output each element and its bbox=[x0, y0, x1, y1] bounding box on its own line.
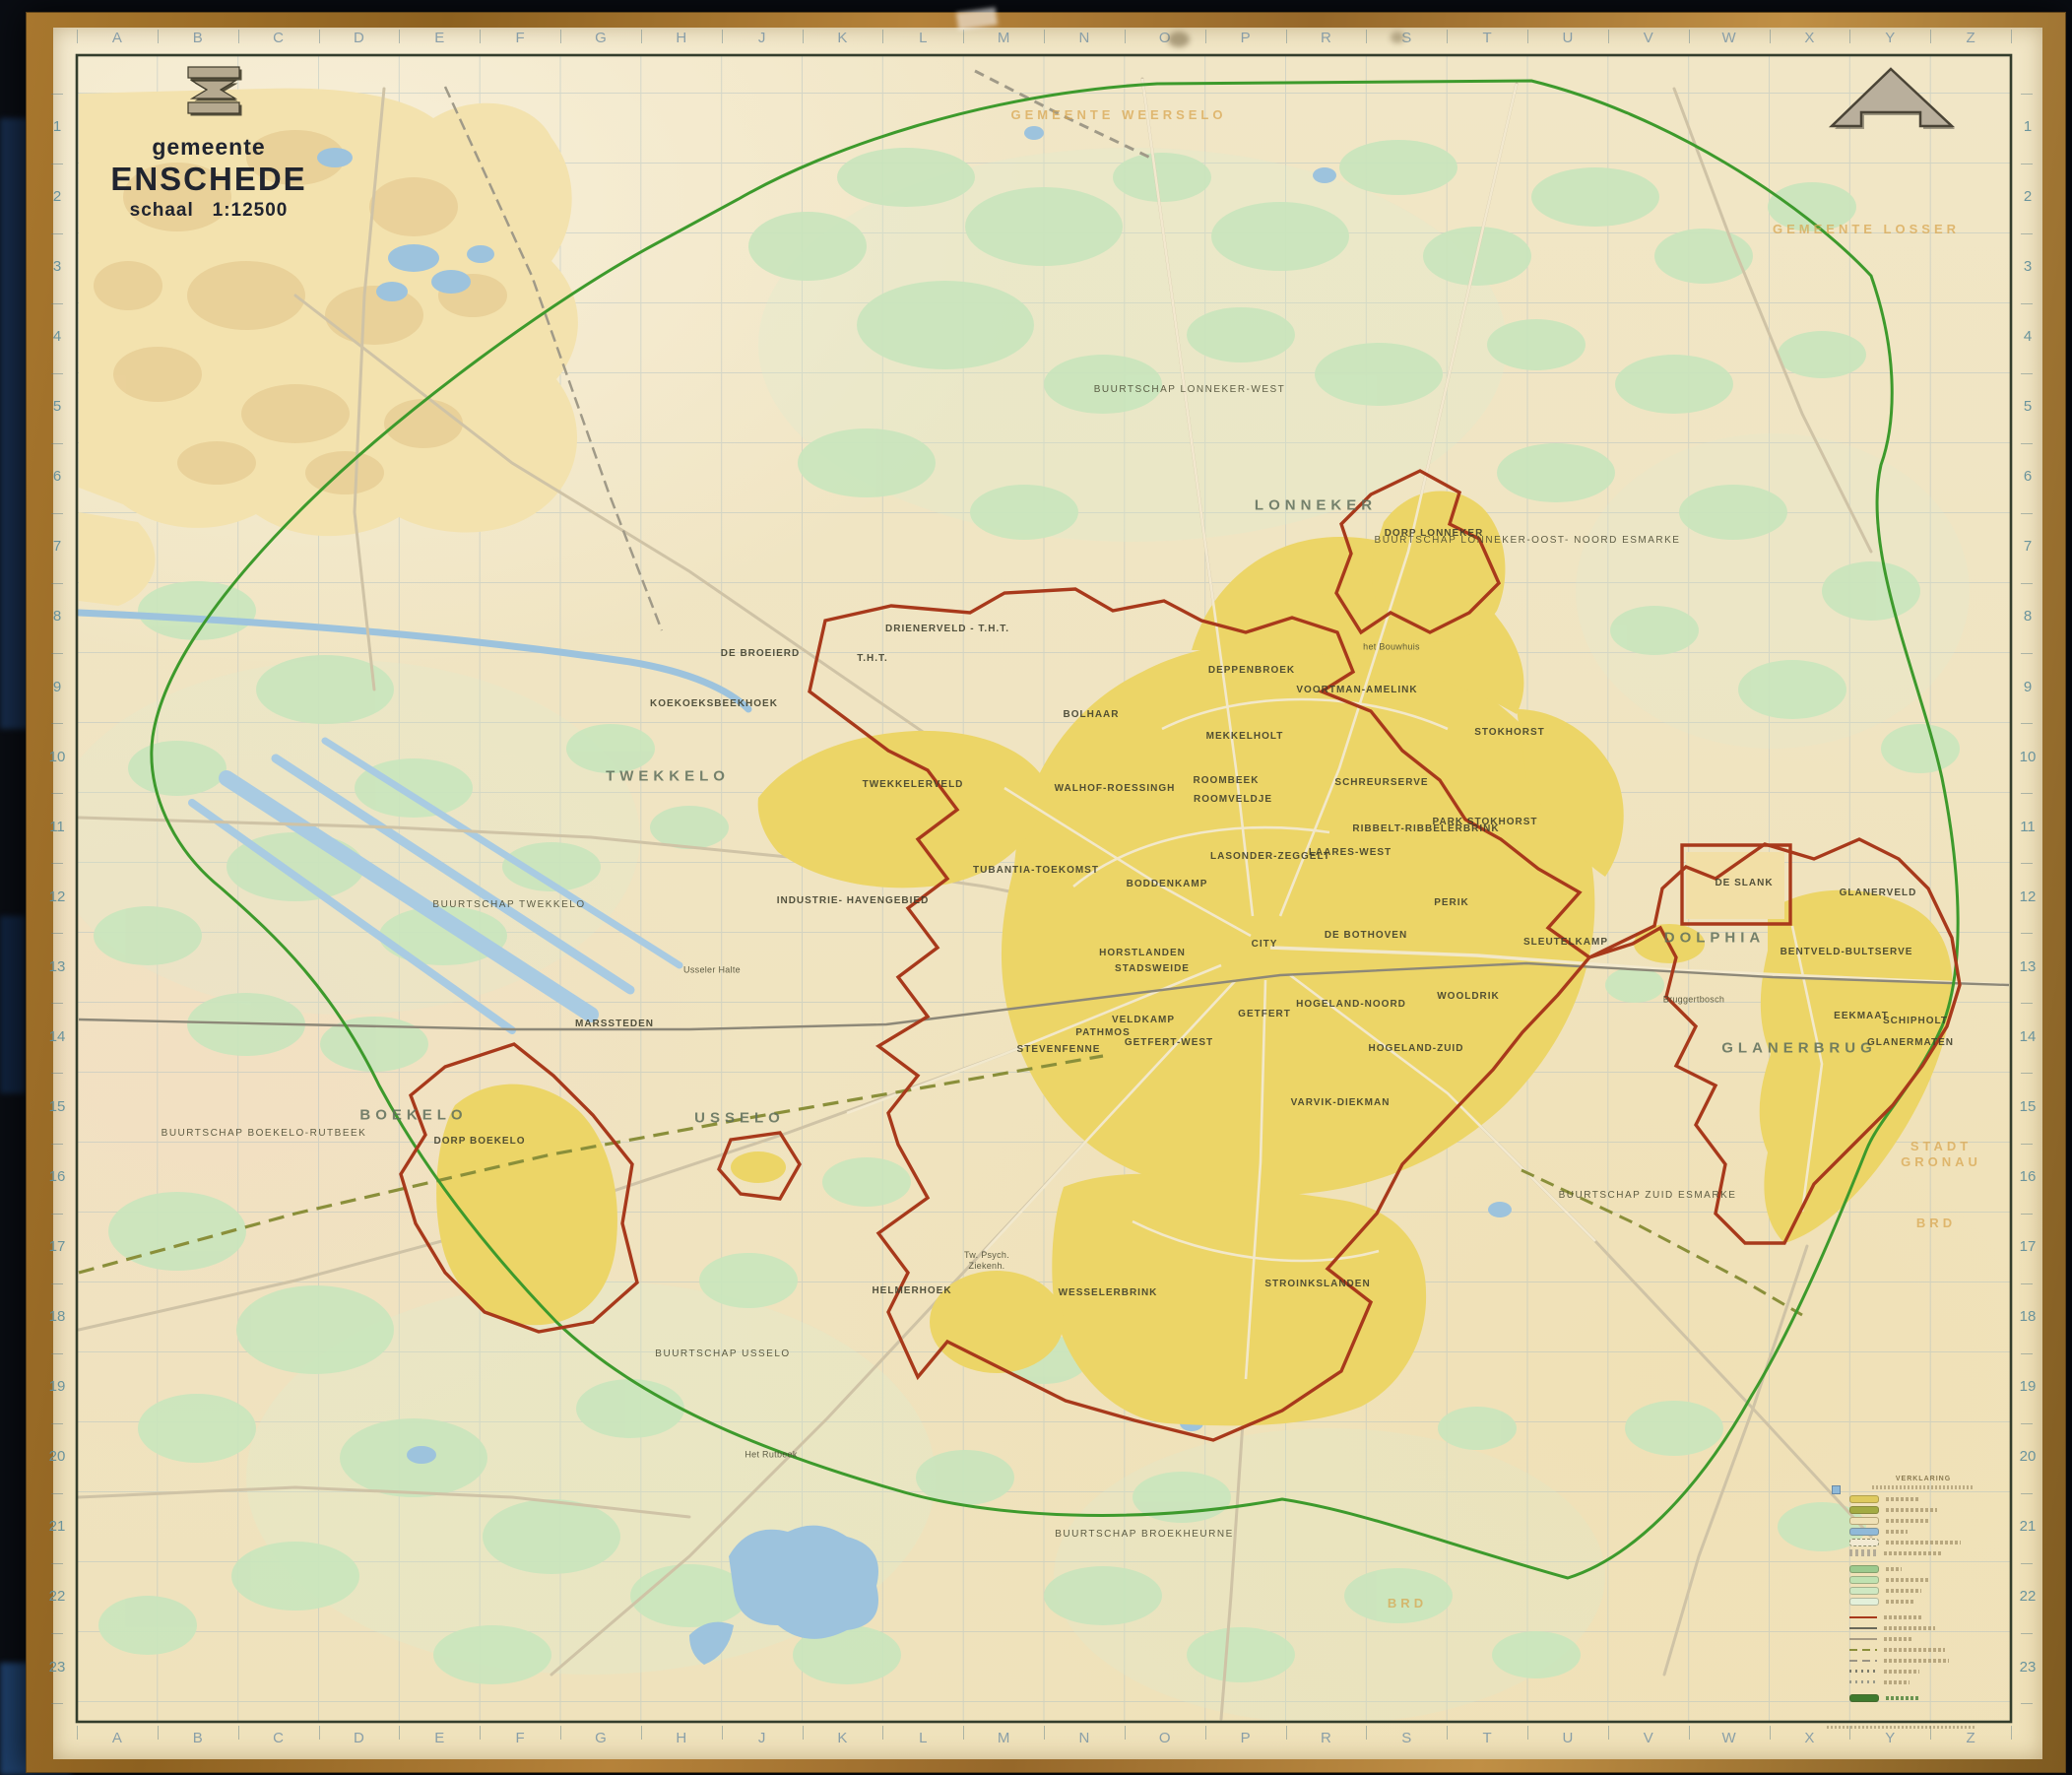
legend-row bbox=[1849, 1526, 1997, 1537]
legend-swatch bbox=[1849, 1694, 1879, 1702]
legend-row bbox=[1849, 1611, 1997, 1622]
legend-swatch bbox=[1849, 1517, 1879, 1525]
legend-label-bar bbox=[1886, 1696, 1919, 1700]
legend-swatch bbox=[1849, 1649, 1877, 1651]
legend-swatch bbox=[1849, 1539, 1879, 1546]
legend-row bbox=[1849, 1633, 1997, 1644]
title-city-name: ENSCHEDE bbox=[95, 161, 323, 198]
legend-label-bar bbox=[1886, 1578, 1929, 1582]
legend-label-bar bbox=[1884, 1626, 1935, 1630]
legend-swatch bbox=[1849, 1660, 1877, 1662]
legend-row bbox=[1849, 1666, 1997, 1676]
legend-label-bar bbox=[1886, 1541, 1961, 1545]
legend-row bbox=[1849, 1655, 1997, 1666]
legend-swatch bbox=[1849, 1506, 1879, 1514]
legend-label-bar bbox=[1884, 1551, 1941, 1555]
legend-swatch bbox=[1849, 1549, 1877, 1556]
legend-row bbox=[1849, 1563, 1997, 1574]
legend-row bbox=[1849, 1515, 1997, 1526]
legend-row bbox=[1849, 1622, 1997, 1633]
legend-row bbox=[1849, 1585, 1997, 1596]
legend-label-bar bbox=[1886, 1497, 1919, 1501]
legend-rows bbox=[1849, 1493, 1997, 1703]
legend-swatch bbox=[1849, 1680, 1877, 1683]
scale-value: 1:12500 bbox=[213, 200, 289, 221]
legend-swatch bbox=[1849, 1528, 1879, 1536]
legend-swatch bbox=[1849, 1598, 1879, 1606]
legend-row bbox=[1849, 1692, 1997, 1703]
legend-swatch bbox=[1849, 1616, 1877, 1618]
legend-row bbox=[1849, 1547, 1997, 1558]
legend-row bbox=[1849, 1504, 1997, 1515]
legend-swatch bbox=[1849, 1587, 1879, 1595]
legend-row bbox=[1849, 1596, 1997, 1607]
map-canvas bbox=[0, 0, 2072, 1775]
legend-label-bar bbox=[1884, 1680, 1910, 1684]
legend-swatch bbox=[1849, 1495, 1879, 1503]
legend-label-bar bbox=[1886, 1508, 1937, 1512]
title-scale: schaal 1:12500 bbox=[95, 200, 323, 222]
legend-swatch bbox=[1849, 1638, 1877, 1640]
legend-row bbox=[1849, 1676, 1997, 1687]
legend-row bbox=[1849, 1537, 1997, 1547]
legend-swatch bbox=[1849, 1565, 1879, 1573]
stain bbox=[1168, 32, 1190, 47]
framed-wall-map-photo: gemeente ENSCHEDE schaal 1:12500 LONNEKE… bbox=[0, 0, 2072, 1775]
legend-label-bar bbox=[1884, 1659, 1949, 1663]
legend-row bbox=[1849, 1644, 1997, 1655]
legend-label-bar bbox=[1886, 1600, 1915, 1604]
legend-label-bar bbox=[1886, 1589, 1921, 1593]
legend-title: VERKLARING bbox=[1849, 1476, 1997, 1482]
legend-row bbox=[1849, 1493, 1997, 1504]
legend-label-bar bbox=[1884, 1648, 1945, 1652]
legend-label-bar bbox=[1884, 1615, 1923, 1619]
stain bbox=[1391, 32, 1404, 43]
legend-label-bar bbox=[1884, 1637, 1913, 1641]
title-block: gemeente ENSCHEDE schaal 1:12500 bbox=[95, 126, 323, 222]
map-legend: VERKLARING bbox=[1849, 1476, 1997, 1703]
legend-row bbox=[1849, 1574, 1997, 1585]
legend-label-bar bbox=[1884, 1670, 1919, 1674]
legend-swatch bbox=[1849, 1670, 1877, 1673]
legend-label-bar bbox=[1886, 1567, 1902, 1571]
legend-marker bbox=[1832, 1485, 1841, 1494]
legend-swatch bbox=[1849, 1627, 1877, 1629]
title-gemeente: gemeente bbox=[95, 134, 323, 161]
legend-subtitle-bar bbox=[1872, 1485, 1975, 1489]
scale-label: schaal bbox=[130, 200, 194, 221]
legend-label-bar bbox=[1886, 1519, 1929, 1523]
credit-text-bar bbox=[1827, 1726, 1975, 1729]
legend-swatch bbox=[1849, 1576, 1879, 1584]
legend-label-bar bbox=[1886, 1530, 1908, 1534]
